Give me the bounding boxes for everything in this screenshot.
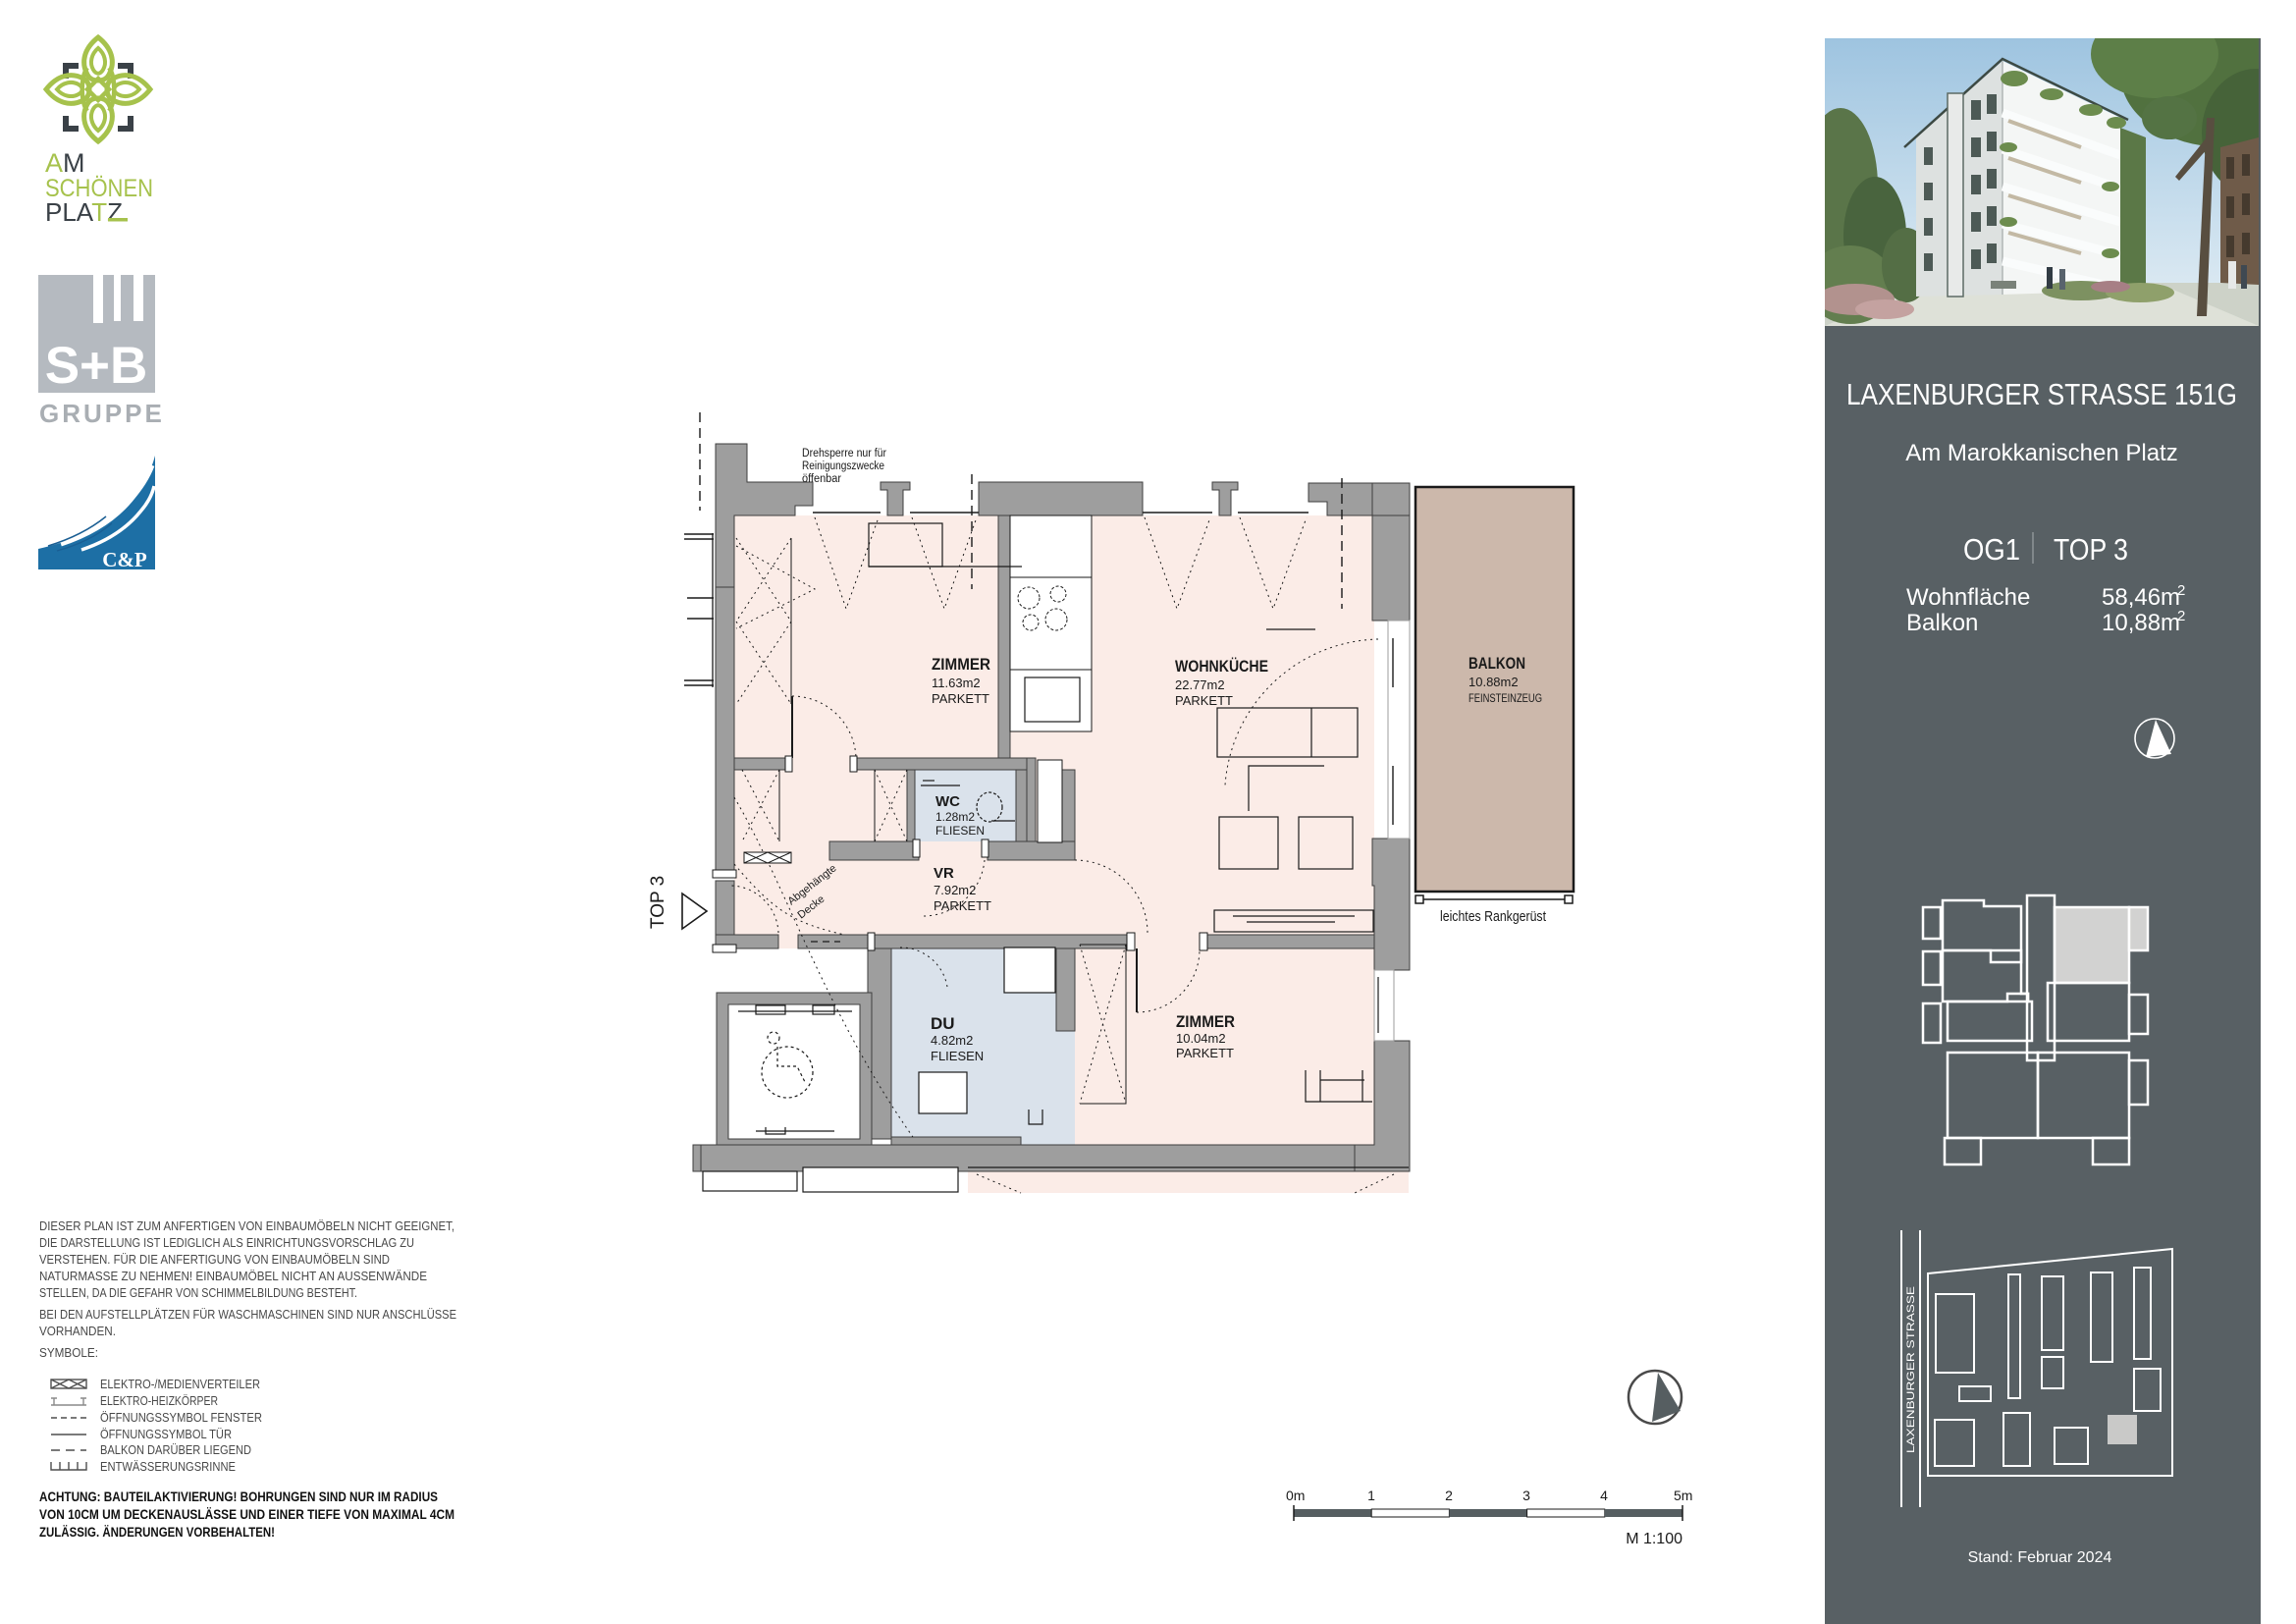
- svg-text:SYMBOLE:: SYMBOLE:: [39, 1345, 98, 1360]
- svg-text:10,88m: 10,88m: [2102, 610, 2180, 636]
- svg-text:PLATZ: PLATZ: [45, 197, 123, 227]
- svg-text:TOP 3: TOP 3: [648, 876, 668, 929]
- svg-text:DIESER PLAN IST ZUM ANFERTIGEN: DIESER PLAN IST ZUM ANFERTIGEN VON EINBA…: [39, 1218, 454, 1233]
- svg-text:DIE DARSTELLUNG IST LEDIGLICH: DIE DARSTELLUNG IST LEDIGLICH ALS EINRIC…: [39, 1235, 414, 1250]
- svg-text:2: 2: [2177, 608, 2185, 624]
- svg-text:öffenbar: öffenbar: [802, 473, 841, 485]
- svg-text:NATURMASSE ZU NEHMEN! EINBAUMÖ: NATURMASSE ZU NEHMEN! EINBAUMÖBEL NICHT …: [39, 1269, 427, 1283]
- svg-text:STELLEN, DA DIE GEFAHR VON SCH: STELLEN, DA DIE GEFAHR VON SCHIMMELBILDU…: [39, 1285, 357, 1300]
- svg-text:ELEKTRO-HEIZKÖRPER: ELEKTRO-HEIZKÖRPER: [100, 1393, 218, 1408]
- svg-text:5m: 5m: [1674, 1488, 1692, 1503]
- svg-text:AM: AM: [45, 148, 85, 178]
- svg-text:11.63m2: 11.63m2: [932, 676, 981, 690]
- svg-text:S+B: S+B: [45, 337, 148, 395]
- svg-text:2: 2: [1445, 1488, 1453, 1503]
- svg-text:DU: DU: [931, 1014, 955, 1033]
- svg-text:1: 1: [1367, 1488, 1375, 1503]
- svg-text:Drehsperre nur für: Drehsperre nur für: [802, 448, 886, 460]
- svg-text:ÖFFNUNGSSYMBOL TÜR: ÖFFNUNGSSYMBOL TÜR: [100, 1427, 232, 1441]
- svg-text:ÖFFNUNGSSYMBOL FENSTER: ÖFFNUNGSSYMBOL FENSTER: [100, 1410, 262, 1425]
- svg-text:PARKETT: PARKETT: [934, 898, 991, 913]
- svg-text:M 1:100: M 1:100: [1626, 1531, 1682, 1547]
- svg-text:ZULÄSSIG. ÄNDERUNGEN VORBEHALT: ZULÄSSIG. ÄNDERUNGEN VORBEHALTEN!: [39, 1525, 275, 1540]
- svg-text:FLIESEN: FLIESEN: [931, 1049, 984, 1063]
- svg-text:leichtes Rankgerüst: leichtes Rankgerüst: [1440, 908, 1547, 925]
- svg-text:VON 10CM UM DECKENAUSLÄSSE UN: VON 10CM UM DECKENAUSLÄSSE UND EINER TIE…: [39, 1507, 454, 1522]
- svg-text:PARKETT: PARKETT: [1175, 693, 1233, 708]
- svg-text:FEINSTEINZEUG: FEINSTEINZEUG: [1468, 691, 1542, 705]
- svg-text:ACHTUNG: BAUTEILAKTIVIERUNG! B: ACHTUNG: BAUTEILAKTIVIERUNG! BOHRUNGEN S…: [39, 1489, 438, 1504]
- svg-text:BALKON DARÜBER LIEGEND: BALKON DARÜBER LIEGEND: [100, 1442, 251, 1457]
- svg-text:3: 3: [1522, 1488, 1530, 1503]
- svg-text:LAXENBURGER STRASSE 151G: LAXENBURGER STRASSE 151G: [1846, 377, 2237, 411]
- svg-text:PARKETT: PARKETT: [1176, 1046, 1234, 1060]
- svg-text:ELEKTRO-/MEDIENVERTEILER: ELEKTRO-/MEDIENVERTEILER: [100, 1377, 260, 1391]
- svg-text:Reinigungszwecke: Reinigungszwecke: [802, 460, 884, 472]
- svg-text:BALKON: BALKON: [1468, 654, 1525, 673]
- svg-text:VR: VR: [934, 865, 954, 882]
- svg-text:VERSTEHEN. FÜR DIE ANFERTIGUNG: VERSTEHEN. FÜR DIE ANFERTIGUNG VON EINBA…: [39, 1252, 390, 1267]
- svg-text:OG1: OG1: [1963, 532, 2020, 567]
- svg-text:WC: WC: [935, 793, 960, 810]
- svg-text:VORHANDEN.: VORHANDEN.: [39, 1324, 116, 1338]
- svg-text:Stand: Februar 2024: Stand: Februar 2024: [1968, 1549, 2112, 1566]
- svg-text:Balkon: Balkon: [1906, 610, 1978, 636]
- svg-text:Am Marokkanischen Platz: Am Marokkanischen Platz: [1905, 440, 2177, 466]
- svg-text:ENTWÄSSERUNGSRINNE: ENTWÄSSERUNGSRINNE: [100, 1459, 236, 1474]
- svg-text:10.04m2: 10.04m2: [1176, 1031, 1226, 1046]
- svg-text:GRUPPE: GRUPPE: [39, 399, 165, 428]
- svg-text:BEI DEN AUFSTELLPLÄTZEN FÜR WA: BEI DEN AUFSTELLPLÄTZEN FÜR WASCHMASCHIN…: [39, 1307, 456, 1322]
- svg-text:LAXENBURGER STRASSE: LAXENBURGER STRASSE: [1905, 1286, 1917, 1453]
- svg-text:58,46m: 58,46m: [2102, 584, 2180, 611]
- svg-text:1.28m2: 1.28m2: [935, 810, 975, 824]
- svg-text:0m: 0m: [1286, 1488, 1305, 1503]
- svg-text:TOP 3: TOP 3: [2054, 532, 2128, 567]
- svg-text:7.92m2: 7.92m2: [934, 883, 976, 897]
- svg-text:C&P: C&P: [102, 548, 147, 571]
- svg-text:10.88m2: 10.88m2: [1468, 675, 1519, 689]
- svg-text:4.82m2: 4.82m2: [931, 1033, 973, 1048]
- svg-text:22.77m2: 22.77m2: [1175, 677, 1225, 692]
- svg-text:2: 2: [2177, 582, 2185, 599]
- svg-text:WOHNKÜCHE: WOHNKÜCHE: [1175, 657, 1268, 676]
- svg-text:Wohnfläche: Wohnfläche: [1906, 584, 2030, 611]
- svg-text:ZIMMER: ZIMMER: [1176, 1012, 1235, 1031]
- svg-text:ZIMMER: ZIMMER: [932, 655, 990, 674]
- svg-text:PARKETT: PARKETT: [932, 691, 989, 706]
- svg-text:4: 4: [1600, 1488, 1608, 1503]
- svg-text:FLIESEN: FLIESEN: [935, 824, 985, 838]
